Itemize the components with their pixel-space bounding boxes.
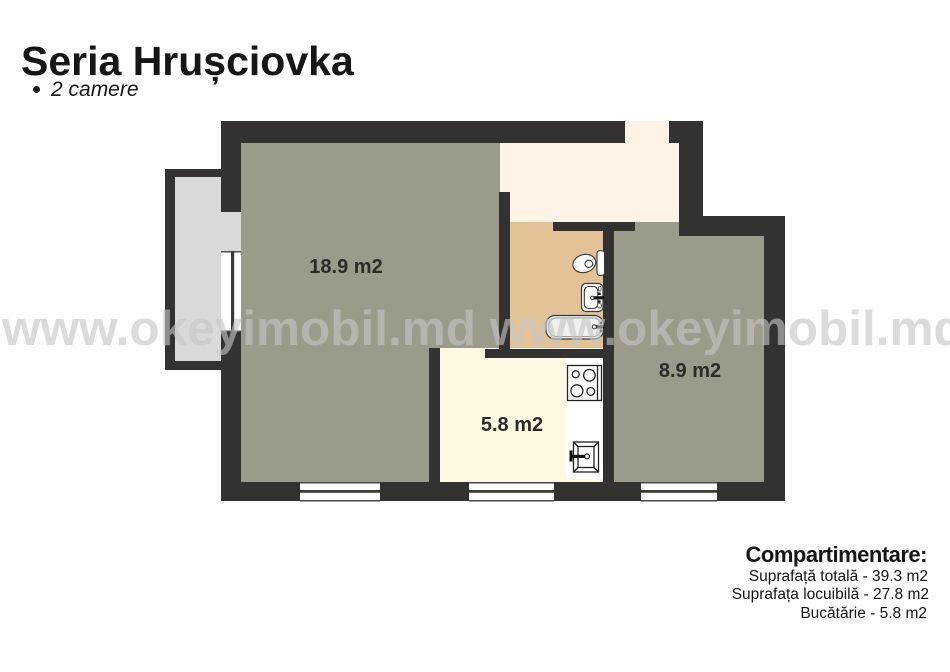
svg-text:www.okeyimobil.md www.okeyimob: www.okeyimobil.md www.okeyimobil.md xyxy=(1,301,950,356)
svg-text:18.9 m2: 18.9 m2 xyxy=(309,256,382,278)
svg-text:8.9 m2: 8.9 m2 xyxy=(659,360,721,382)
svg-text:5.8 m2: 5.8 m2 xyxy=(481,414,543,436)
